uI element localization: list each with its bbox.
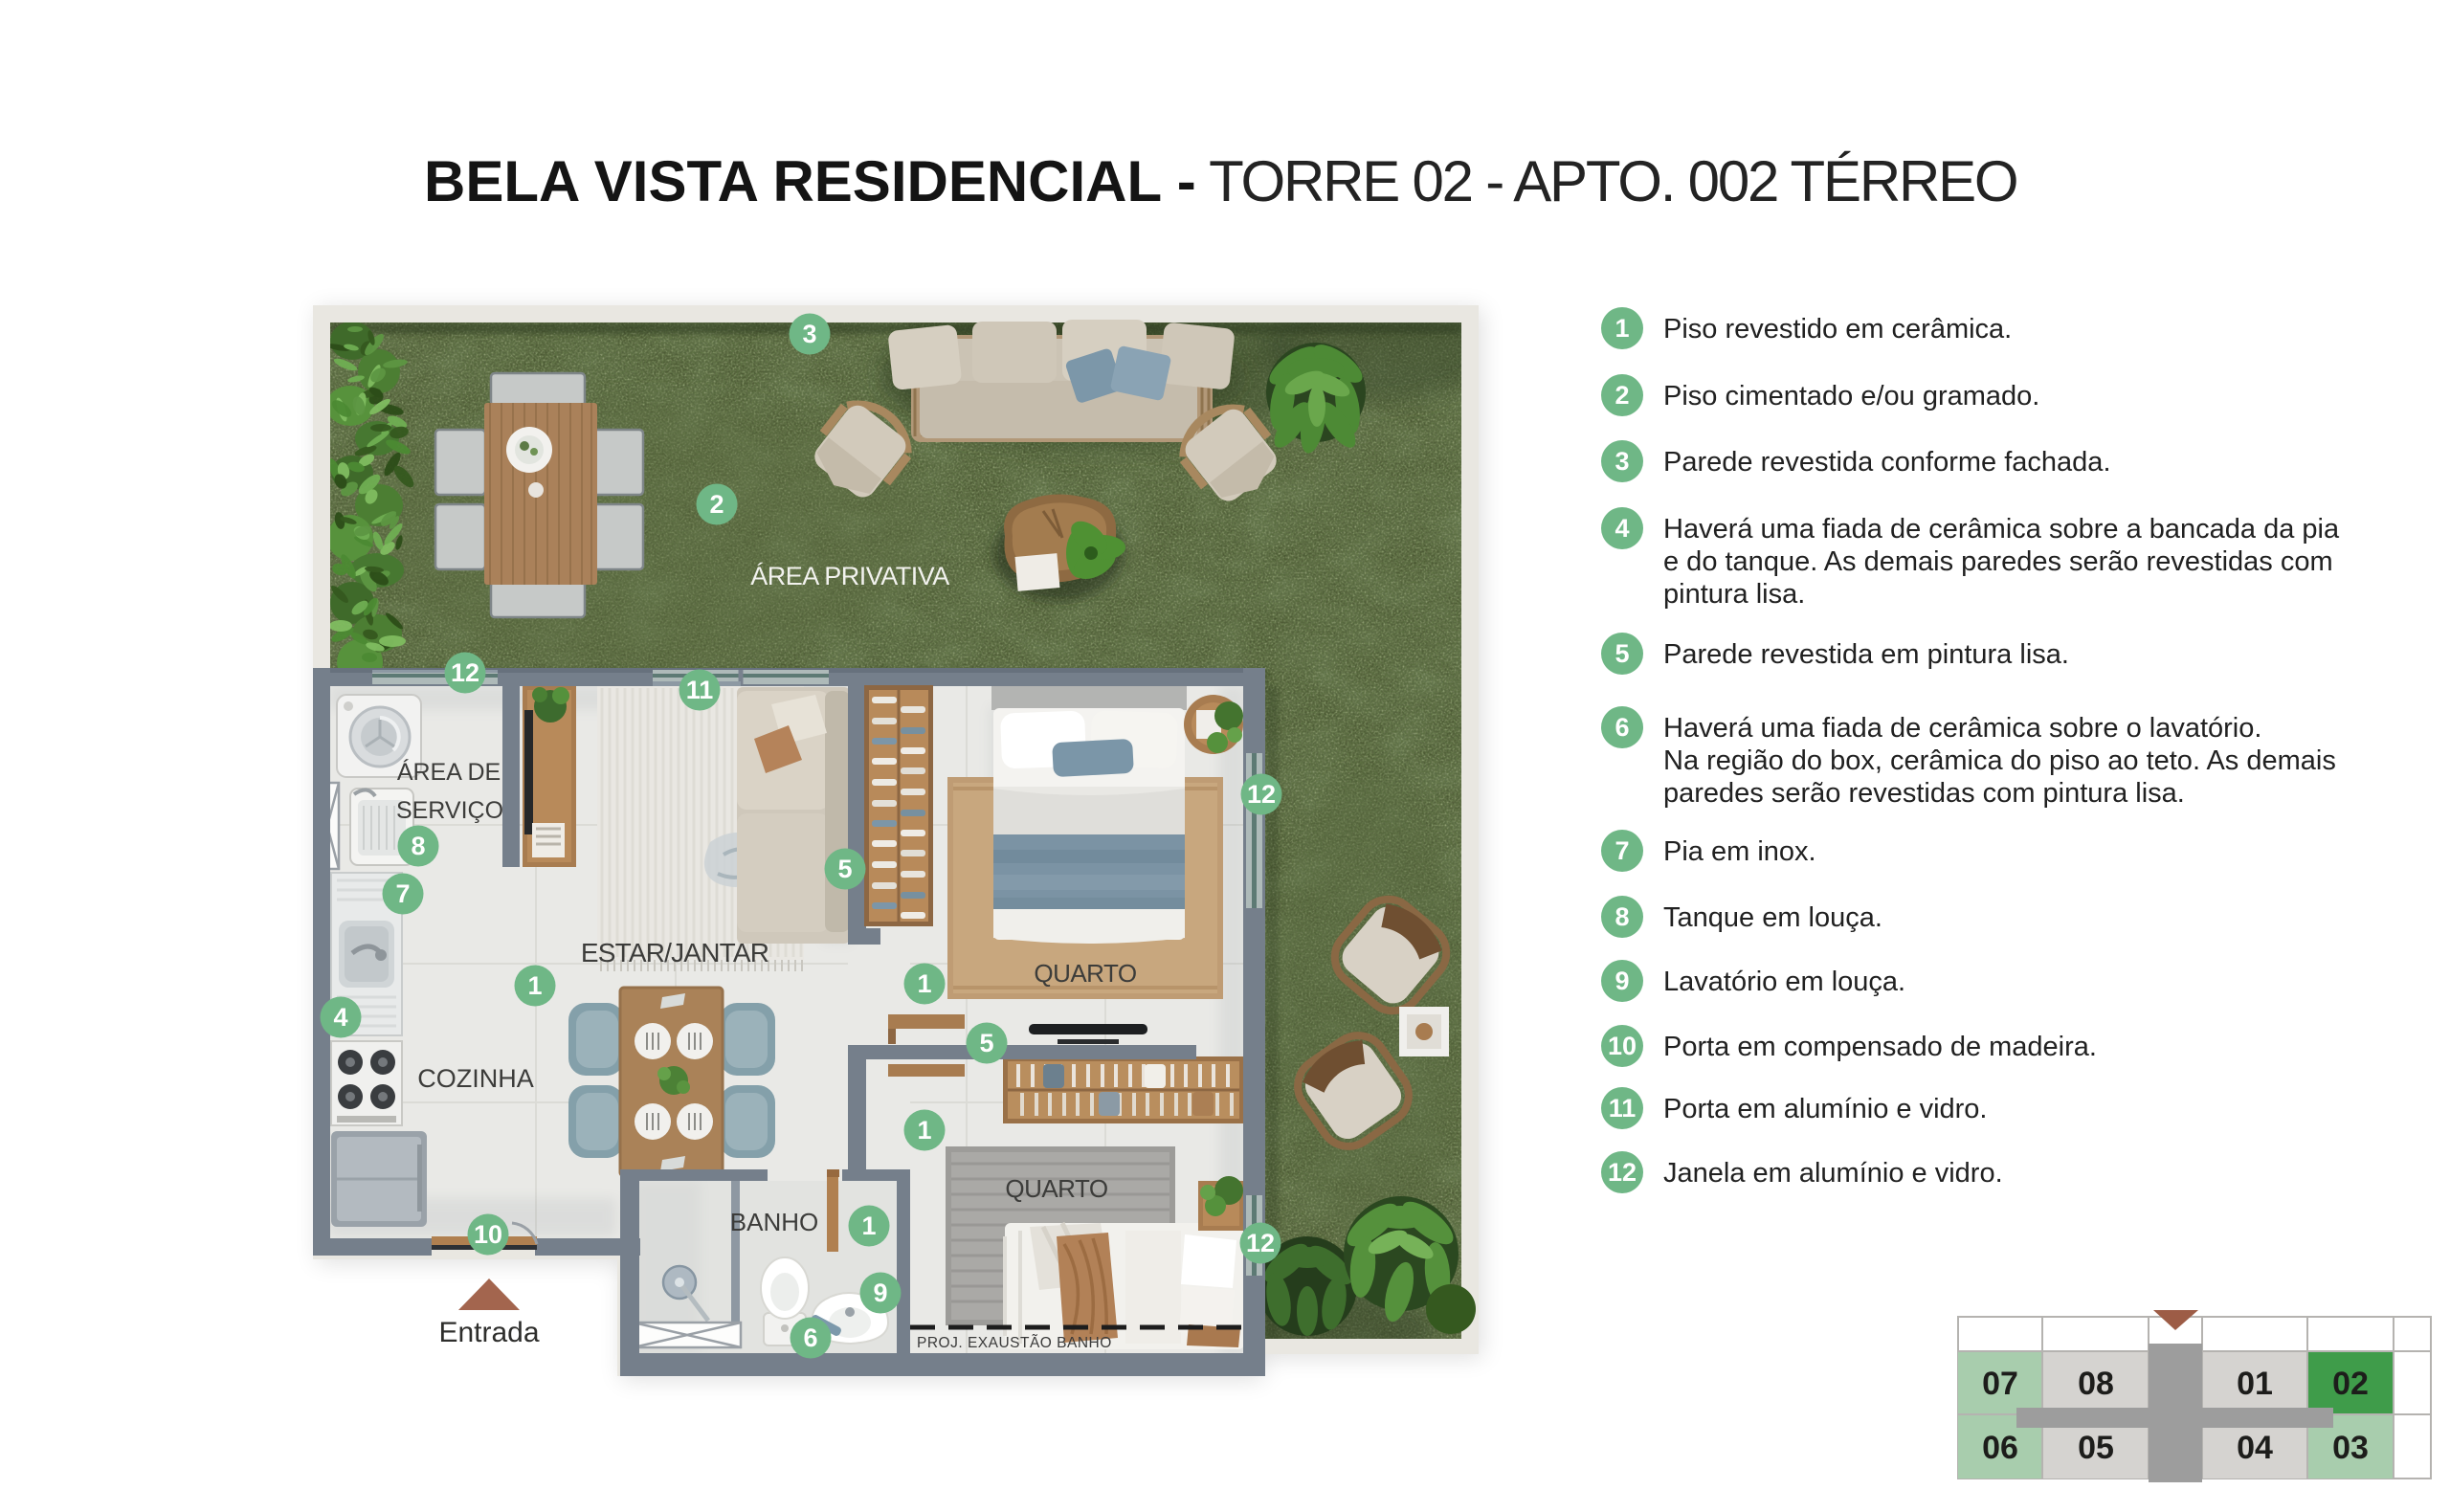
svg-text:3: 3	[1615, 447, 1629, 476]
svg-text:12: 12	[451, 658, 479, 687]
svg-text:Na região do box, cerâmica do: Na região do box, cerâmica do piso ao te…	[1663, 745, 2336, 776]
svg-text:6: 6	[1615, 713, 1629, 742]
svg-text:12: 12	[1246, 1229, 1275, 1257]
svg-text:11: 11	[1609, 1094, 1637, 1123]
svg-text:COZINHA: COZINHA	[417, 1064, 534, 1093]
svg-text:Porta em alumínio e vidro.: Porta em alumínio e vidro.	[1663, 1094, 1987, 1124]
svg-text:4: 4	[333, 1003, 347, 1032]
svg-text:Piso cimentado e/ou gramado.: Piso cimentado e/ou gramado.	[1663, 381, 2039, 411]
svg-text:6: 6	[803, 1323, 817, 1352]
svg-text:11: 11	[686, 676, 714, 704]
svg-text:05: 05	[2078, 1430, 2114, 1466]
svg-text:12: 12	[1608, 1158, 1637, 1187]
svg-text:1: 1	[1615, 314, 1629, 343]
svg-text:5: 5	[1615, 639, 1629, 668]
svg-text:Haverá uma fiada de cerâmica s: Haverá uma fiada de cerâmica sobre a ban…	[1663, 514, 2340, 545]
svg-text:BANHO: BANHO	[730, 1208, 818, 1236]
svg-text:QUARTO: QUARTO	[1034, 959, 1136, 988]
svg-text:BELA VISTA RESIDENCIAL - TORRE: BELA VISTA RESIDENCIAL - TORRE 02 - APTO…	[424, 149, 2016, 213]
svg-text:4: 4	[1615, 514, 1629, 543]
svg-text:8: 8	[411, 832, 425, 860]
svg-text:Parede revestida conforme fach: Parede revestida conforme fachada.	[1663, 447, 2111, 478]
svg-text:8: 8	[1615, 902, 1629, 931]
svg-text:5: 5	[837, 855, 852, 883]
svg-text:Parede revestida em pintura li: Parede revestida em pintura lisa.	[1663, 639, 2069, 670]
svg-text:2: 2	[709, 490, 724, 519]
svg-text:12: 12	[1247, 780, 1276, 809]
svg-text:ÁREA PRIVATIVA: ÁREA PRIVATIVA	[750, 562, 949, 590]
svg-text:pintura lisa.: pintura lisa.	[1663, 579, 1805, 610]
svg-text:ÁREA DE: ÁREA DE	[397, 758, 501, 786]
svg-text:7: 7	[1615, 836, 1629, 865]
svg-text:1: 1	[917, 969, 931, 998]
svg-text:06: 06	[1982, 1430, 2018, 1466]
svg-text:Janela em alumínio e vidro.: Janela em alumínio e vidro.	[1663, 1158, 2003, 1189]
svg-text:Entrada: Entrada	[438, 1317, 539, 1348]
svg-text:SERVIÇO: SERVIÇO	[396, 797, 503, 824]
svg-text:PROJ. EXAUSTÃO BANHO: PROJ. EXAUSTÃO BANHO	[917, 1335, 1112, 1351]
svg-text:04: 04	[2237, 1430, 2273, 1466]
svg-text:1: 1	[861, 1212, 876, 1240]
svg-text:3: 3	[802, 320, 816, 348]
svg-text:1: 1	[917, 1116, 931, 1145]
svg-text:ESTAR/JANTAR: ESTAR/JANTAR	[581, 938, 768, 967]
svg-text:10: 10	[474, 1220, 502, 1249]
svg-text:7: 7	[395, 879, 410, 908]
svg-text:QUARTO: QUARTO	[1005, 1174, 1107, 1203]
svg-text:1: 1	[527, 971, 542, 1000]
svg-text:2: 2	[1615, 381, 1629, 410]
svg-text:9: 9	[873, 1279, 887, 1307]
svg-text:Tanque em louça.: Tanque em louça.	[1663, 902, 1882, 933]
svg-text:02: 02	[2332, 1366, 2369, 1402]
svg-text:01: 01	[2237, 1366, 2273, 1402]
svg-text:9: 9	[1615, 967, 1629, 995]
svg-text:5: 5	[979, 1029, 993, 1057]
svg-text:07: 07	[1982, 1366, 2018, 1402]
svg-text:Porta em compensado de madeira: Porta em compensado de madeira.	[1663, 1032, 2097, 1062]
svg-text:08: 08	[2078, 1366, 2114, 1402]
svg-text:Pia em inox.: Pia em inox.	[1663, 836, 1816, 867]
svg-text:Haverá uma fiada de cerâmica s: Haverá uma fiada de cerâmica sobre o lav…	[1663, 713, 2261, 744]
svg-text:03: 03	[2332, 1430, 2369, 1466]
svg-text:Piso revestido em cerâmica.: Piso revestido em cerâmica.	[1663, 314, 2012, 345]
svg-text:e do tanque. As demais paredes: e do tanque. As demais paredes serão rev…	[1663, 546, 2333, 577]
svg-text:paredes serão revestidas com p: paredes serão revestidas com pintura lis…	[1663, 778, 2185, 809]
svg-text:10: 10	[1608, 1032, 1637, 1060]
svg-text:Lavatório em louça.: Lavatório em louça.	[1663, 967, 1905, 997]
